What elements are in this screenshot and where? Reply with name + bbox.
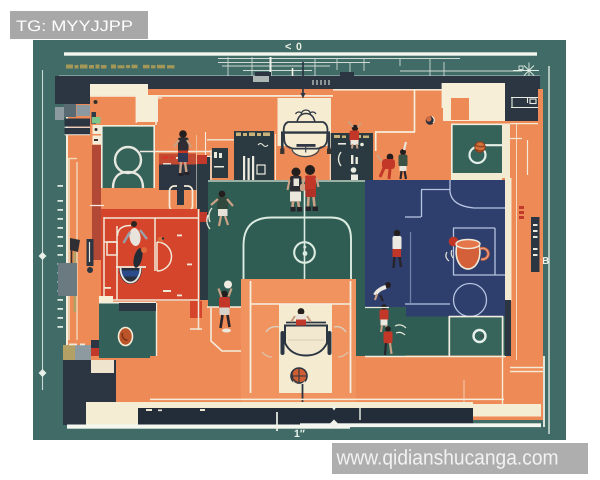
svg-text:B: B — [542, 256, 549, 267]
svg-text:TG: MYYJJPP: TG: MYYJJPP — [16, 18, 133, 35]
svg-text:0: 0 — [296, 41, 302, 53]
svg-text:www.qidianshucanga.com: www.qidianshucanga.com — [336, 447, 559, 470]
svg-text:1′′: 1′′ — [294, 428, 305, 440]
svg-text:<: < — [285, 41, 291, 53]
